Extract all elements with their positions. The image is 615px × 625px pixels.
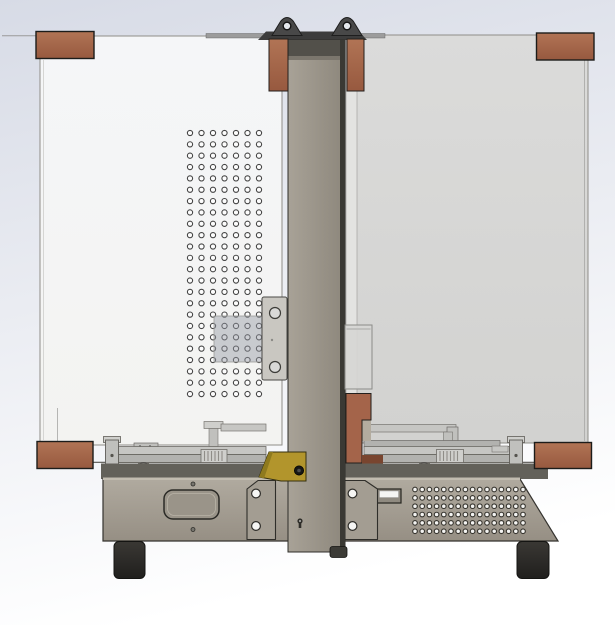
gusset-hole [348,522,357,531]
perforation-hole [222,130,227,135]
vent-hole [456,521,461,526]
vent-hole [449,529,454,534]
gusset-hole [252,489,261,498]
access-panel-cutout[interactable] [164,490,219,519]
perforation-hole [199,312,204,317]
vent-hole [492,504,497,509]
vent-hole [463,504,468,509]
vent-hole [434,529,439,534]
perforation-hole [222,176,227,181]
vent-hole [427,487,432,492]
vent-hole [514,487,519,492]
translucent-square-plate[interactable] [214,316,263,362]
perforation-hole [256,199,261,204]
perforation-hole [210,301,215,306]
vent-hole [413,487,418,492]
vent-hole [413,504,418,509]
electronics-box-lid-line [347,328,371,330]
perforation-hole [222,164,227,169]
vent-hole [413,496,418,501]
gusset-hole [252,522,261,531]
perforation-hole [222,391,227,396]
perforation-hole [210,369,215,374]
electronics-box-face[interactable] [345,325,372,389]
perforation-hole [256,244,261,249]
corner-bracket-top-left[interactable] [36,32,94,59]
vent-hole [463,529,468,534]
perforation-hole [256,369,261,374]
perforation-hole [222,221,227,226]
perforation-hole [187,391,192,396]
perforation-hole [256,255,261,260]
vent-hole [499,487,504,492]
perforation-hole [256,221,261,226]
vent-hole [456,496,461,501]
vent-hole [506,521,511,526]
perforation-hole [222,244,227,249]
lug-hole-left [283,22,291,30]
perforation-hole [233,233,238,238]
corner-bracket-top-right[interactable] [537,33,595,60]
perforation-hole [233,369,238,374]
vent-hole [478,529,483,534]
perforation-hole [210,233,215,238]
vent-hole [427,529,432,534]
vent-hole [427,512,432,517]
perforation-hole [199,301,204,306]
column-clamp-right[interactable] [347,39,364,91]
electronics-box[interactable] [345,325,372,389]
perforation-hole [245,221,250,226]
gusset-hole [348,489,357,498]
perforation-hole [256,233,261,238]
vent-hole [413,512,418,517]
vent-hole [499,512,504,517]
vent-hole [434,504,439,509]
perforation-hole [233,176,238,181]
perforation-hole [233,244,238,249]
upper-rail [364,425,456,433]
perforation-hole [245,199,250,204]
perforation-hole [233,153,238,158]
vent-hole [506,496,511,501]
perforation-hole [256,267,261,272]
right-side-panel[interactable] [346,35,588,443]
mount-plate-screw [271,339,273,341]
perforation-hole [256,176,261,181]
perforation-hole [187,221,192,226]
vent-hole [442,529,447,534]
perforation-hole [233,301,238,306]
motor-mount-plate[interactable] [262,297,287,380]
vent-hole [485,512,490,517]
end-post-hole [514,454,517,457]
perforation-hole [187,323,192,328]
perforation-hole [199,391,204,396]
vent-hole [485,521,490,526]
column-cap-band [288,56,345,60]
perforation-hole [187,187,192,192]
perforation-hole [187,267,192,272]
vent-hole [413,521,418,526]
perforation-hole [256,164,261,169]
vent-hole [420,496,425,501]
perforation-hole [187,346,192,351]
perforation-hole [210,199,215,204]
rubber-foot-right[interactable] [517,542,549,579]
perforation-hole [256,187,261,192]
vent-hole [434,512,439,517]
vent-hole [492,512,497,517]
corner-bracket-bottom-right[interactable] [535,443,592,469]
perforation-hole [187,199,192,204]
perforation-hole [256,130,261,135]
mount-plate-bore [270,362,281,373]
lug-hole-right [343,22,351,30]
perforation-hole [222,142,227,147]
cad-viewport[interactable] [0,0,615,625]
base-gusset-right[interactable] [343,481,378,540]
vent-hole [506,504,511,509]
vent-hole [485,487,490,492]
perforation-hole [210,391,215,396]
vent-hole [449,487,454,492]
perforation-hole [245,210,250,215]
perforation-hole [222,289,227,294]
vent-hole [427,504,432,509]
perforation-hole [187,312,192,317]
perforation-hole [222,210,227,215]
perforation-hole [210,153,215,158]
vent-hole [478,512,483,517]
vent-hole [492,496,497,501]
perforation-hole [210,244,215,249]
vent-hole [521,496,526,501]
vent-hole [499,529,504,534]
vent-hole [420,521,425,526]
perforation-hole [256,391,261,396]
perforation-hole [245,380,250,385]
vent-hole [420,529,425,534]
upper-rail [221,424,266,431]
vent-hole [420,487,425,492]
sensor-bracket-bolt-head [297,469,301,473]
perforation-hole [187,244,192,249]
perforation-hole [222,369,227,374]
vent-hole [499,521,504,526]
vent-hole [478,504,483,509]
vent-hole [470,529,475,534]
vent-hole [463,487,468,492]
vent-hole [506,512,511,517]
vent-hole [492,487,497,492]
perforation-hole [199,255,204,260]
perforation-hole [199,278,204,283]
vent-hole [514,529,519,534]
lower-rail-b [107,455,266,463]
vent-hole [420,512,425,517]
perforation-hole [187,233,192,238]
perforation-hole [199,346,204,351]
perforation-hole [210,130,215,135]
perforation-hole [210,255,215,260]
perforation-hole [256,210,261,215]
vent-hole [442,521,447,526]
perforation-hole [199,153,204,158]
column-side-bracket-shadow [362,455,383,464]
perforation-hole [245,130,250,135]
perforation-hole [199,199,204,204]
vent-hole [470,512,475,517]
perforation-hole [245,187,250,192]
perforation-hole [222,233,227,238]
rail-end-cap [492,446,508,452]
perforation-hole [187,335,192,340]
perforation-hole [233,187,238,192]
perforation-hole [199,357,204,362]
perforation-hole [210,289,215,294]
perforation-hole [233,391,238,396]
perforation-hole [256,142,261,147]
perforation-hole [199,233,204,238]
perforation-hole [256,153,261,158]
vent-hole [434,521,439,526]
rubber-foot-left[interactable] [114,542,145,579]
vent-hole [485,496,490,501]
vent-hole [413,529,418,534]
perforation-hole [245,244,250,249]
perforation-hole [210,380,215,385]
vent-hole [499,496,504,501]
perforation-hole [256,301,261,306]
perforation-hole [210,221,215,226]
vent-hole [449,496,454,501]
perforation-hole [233,221,238,226]
column-slot-pin [299,520,301,522]
perforation-hole [199,380,204,385]
perforation-hole [210,210,215,215]
perforation-hole [245,391,250,396]
vent-hole [470,496,475,501]
perforation-hole [256,380,261,385]
perforation-hole [233,199,238,204]
vent-hole [506,529,511,534]
column-clamp-left[interactable] [269,39,288,91]
perforation-hole [245,289,250,294]
vent-hole [492,521,497,526]
perforation-hole [222,267,227,272]
perforation-hole [210,176,215,181]
perforation-hole [233,380,238,385]
vent-hole [427,521,432,526]
perforation-hole [210,164,215,169]
vent-hole [478,496,483,501]
perforation-hole [187,255,192,260]
power-switch-face [380,491,399,498]
perforation-hole [187,164,192,169]
vent-hole [485,504,490,509]
vent-hole [514,512,519,517]
perforation-hole [187,176,192,181]
vent-hole [470,487,475,492]
vent-hole [463,496,468,501]
perforation-hole [245,233,250,238]
perforation-hole [222,301,227,306]
column-right-shadow [340,40,345,552]
corner-bracket-bottom-left[interactable] [37,442,93,469]
vent-hole [442,496,447,501]
perforation-hole [199,142,204,147]
perforation-hole [222,380,227,385]
base-screw-hole [191,528,195,532]
vent-hole [449,504,454,509]
vent-hole [514,504,519,509]
perforation-hole [199,164,204,169]
mount-plate-bore [270,308,281,319]
perforation-hole [245,267,250,272]
perforation-hole [199,176,204,181]
vent-hole [506,487,511,492]
perforation-hole [199,369,204,374]
perforation-hole [199,323,204,328]
perforation-hole [222,153,227,158]
perforation-hole [245,153,250,158]
vent-hole [514,521,519,526]
perforation-hole [222,278,227,283]
perforation-hole [222,255,227,260]
perforation-hole [256,278,261,283]
perforation-hole [199,267,204,272]
perforation-hole [210,278,215,283]
perforation-hole [199,244,204,249]
perforation-hole [233,255,238,260]
perforation-hole [245,278,250,283]
column-cap [288,40,345,56]
perforation-hole [199,221,204,226]
vent-hole [521,512,526,517]
perforation-hole [199,210,204,215]
perforation-hole [233,130,238,135]
vent-hole [499,504,504,509]
vent-hole [456,512,461,517]
perforation-hole [199,289,204,294]
perforation-hole [187,278,192,283]
perforation-hole [187,369,192,374]
vent-hole [492,529,497,534]
vent-hole [478,521,483,526]
perforation-hole [210,142,215,147]
right-panel-glass[interactable] [350,35,588,443]
perforation-hole [187,130,192,135]
perforation-hole [233,289,238,294]
perforation-hole [210,267,215,272]
vent-hole [434,496,439,501]
vent-hole [470,504,475,509]
vent-hole [449,512,454,517]
perforation-hole [210,187,215,192]
vent-hole [420,504,425,509]
perforation-hole [187,357,192,362]
vent-hole [442,487,447,492]
perforation-hole [199,335,204,340]
perforation-hole [245,176,250,181]
perforation-hole [256,289,261,294]
vent-hole [449,521,454,526]
perforation-hole [187,210,192,215]
vent-hole [485,529,490,534]
vent-hole [463,512,468,517]
vent-hole [442,512,447,517]
perforation-hole [233,267,238,272]
vent-hole [521,504,526,509]
perforation-hole [222,187,227,192]
perforation-hole [199,187,204,192]
perforation-hole [233,278,238,283]
perforation-hole [233,164,238,169]
perforation-hole [187,301,192,306]
vent-hole [521,521,526,526]
lower-rail-a [110,447,266,455]
perforation-hole [245,255,250,260]
base-screw-hole [191,482,195,486]
perforation-hole [245,369,250,374]
perforation-hole [233,142,238,147]
vent-hole [456,504,461,509]
vent-hole [521,487,526,492]
vent-hole [442,504,447,509]
perforation-hole [245,301,250,306]
perforation-hole [222,199,227,204]
vent-hole [456,487,461,492]
column-foot [330,547,347,558]
perforation-hole [187,289,192,294]
perforation-hole [199,130,204,135]
perforation-hole [233,210,238,215]
vent-hole [434,487,439,492]
perforation-hole [245,164,250,169]
perforation-hole [187,142,192,147]
vent-hole [478,487,483,492]
perforation-hole [187,380,192,385]
end-post-hole [110,454,113,457]
vent-hole [456,529,461,534]
column-slot-stem [299,521,302,528]
vent-hole [514,496,519,501]
vent-hole [521,529,526,534]
standoff-cap [204,422,223,429]
vent-hole [470,521,475,526]
perforation-hole [187,153,192,158]
vent-hole [427,496,432,501]
perforation-hole [245,142,250,147]
vent-hole [463,521,468,526]
base-gusset-left[interactable] [247,481,276,540]
